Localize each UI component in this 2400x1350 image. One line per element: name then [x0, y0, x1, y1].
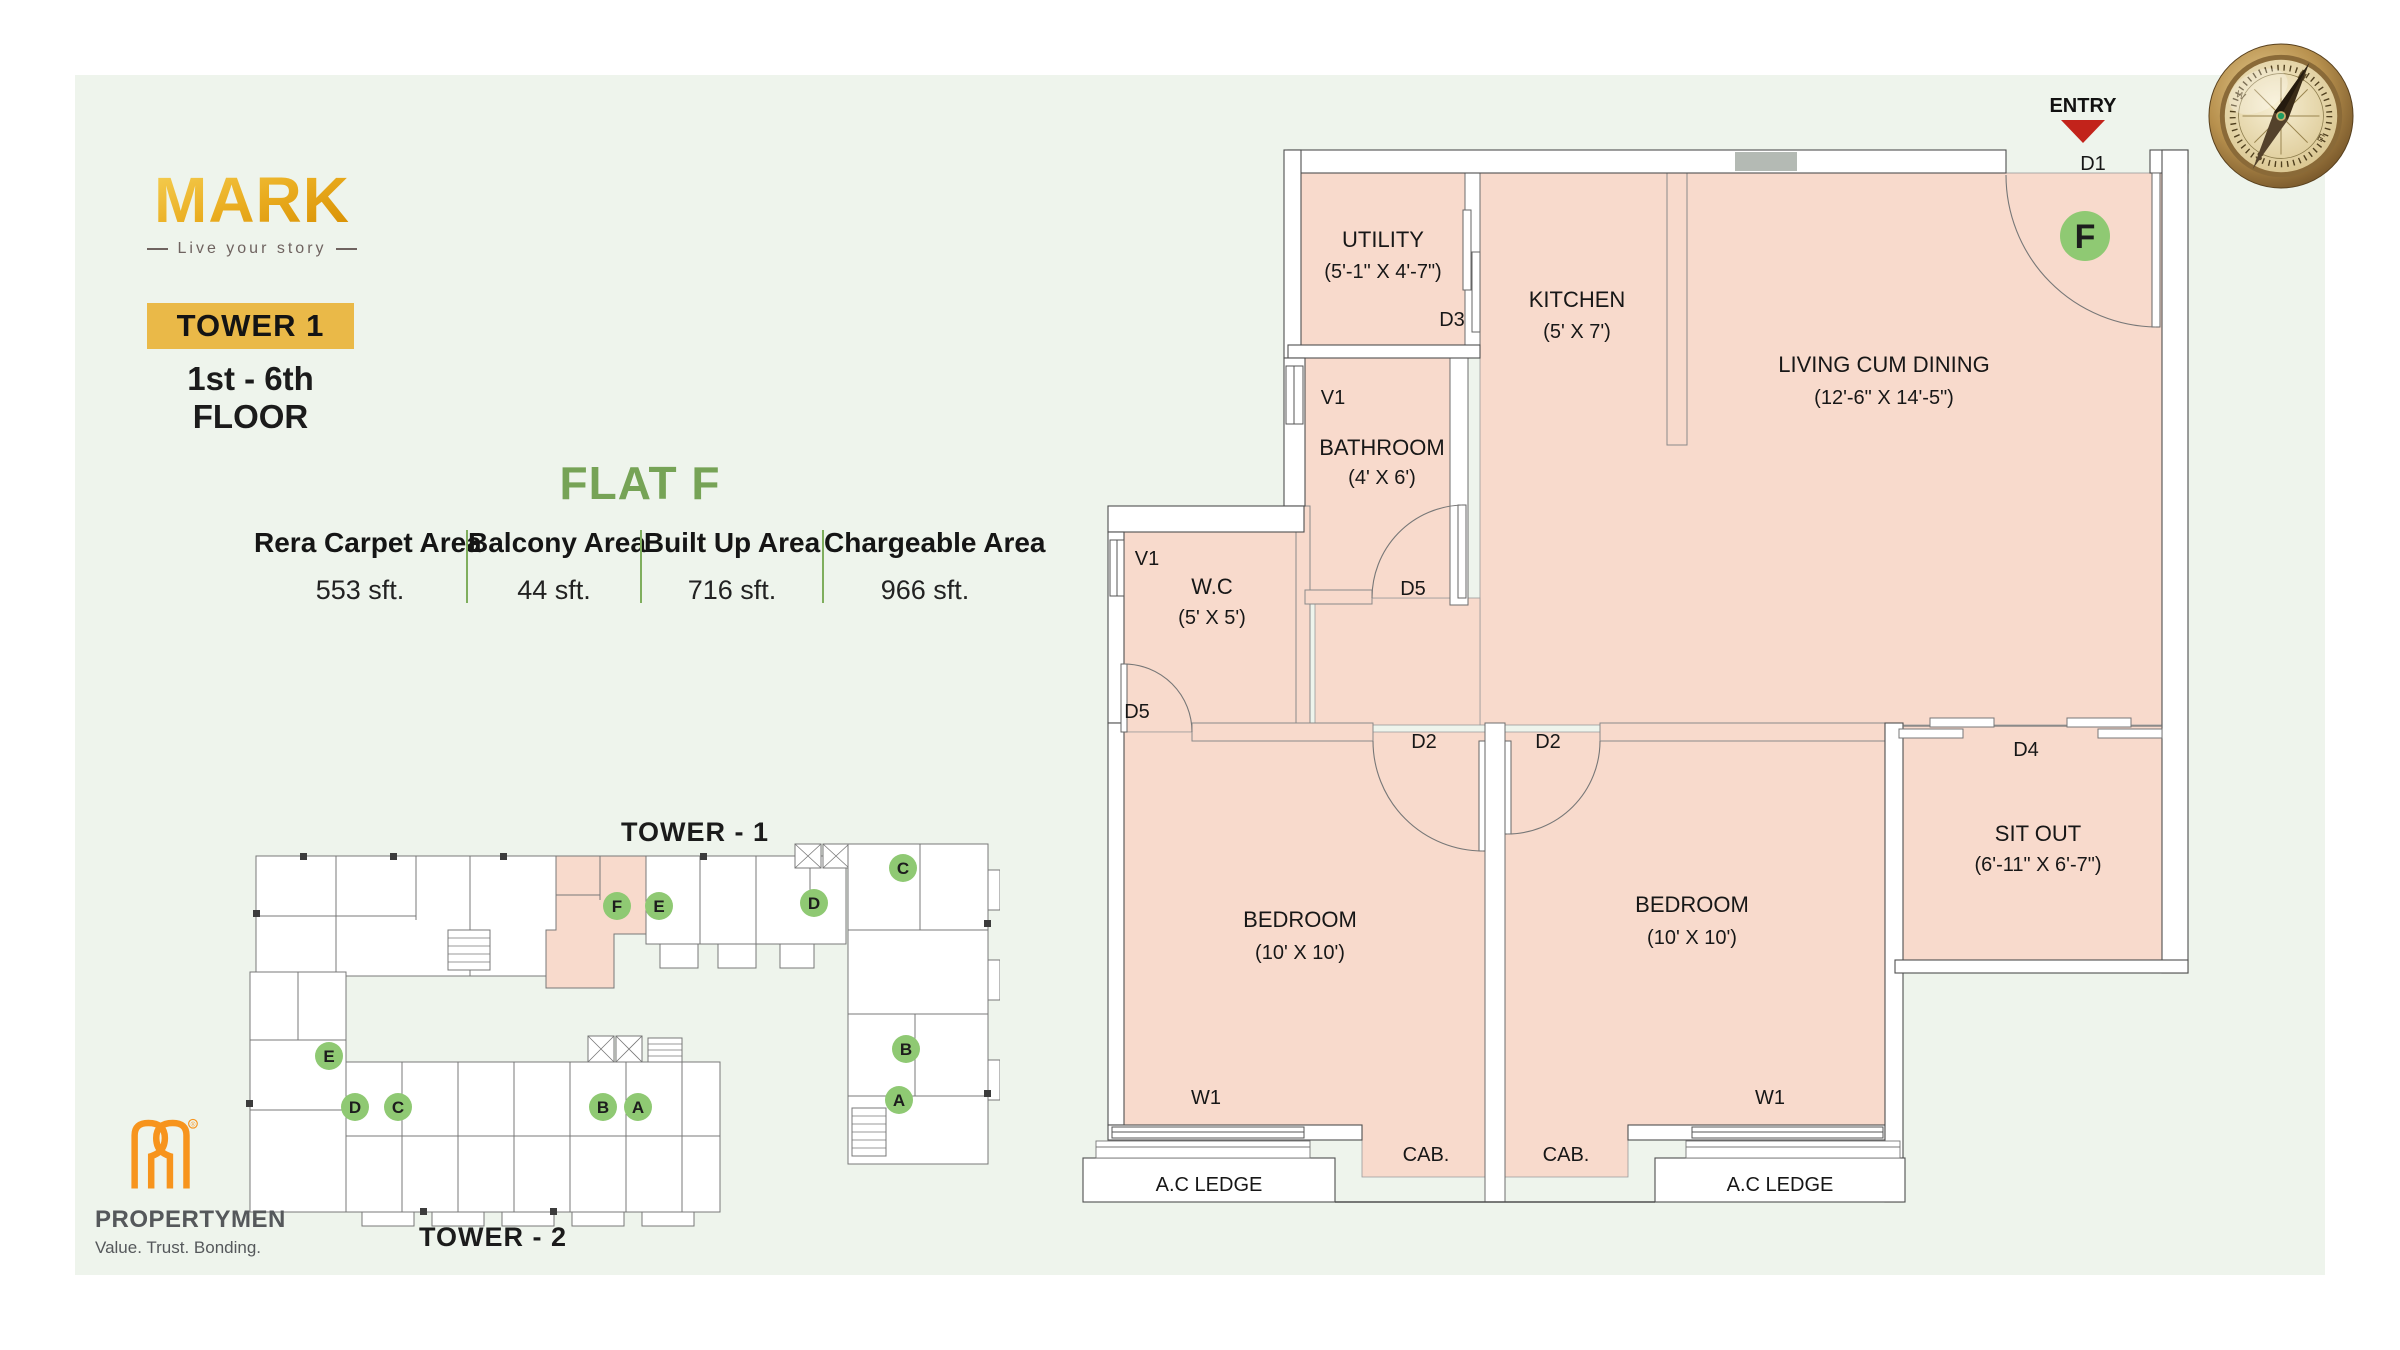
badge-e2: E [323, 1047, 334, 1066]
room-fills [1124, 173, 2165, 1177]
code-d4: D4 [2013, 739, 2039, 761]
tower-badge: TOWER 1 [147, 303, 354, 349]
door-d4-panel [2067, 718, 2131, 727]
code-v1-bathroom: V1 [1321, 387, 1345, 409]
badge-a: A [893, 1091, 905, 1110]
wc-dims: (5' X 5') [1178, 607, 1246, 629]
living-dims: (12'-6" X 14'-5") [1814, 387, 1954, 409]
code-d1: D1 [2080, 153, 2106, 175]
door-d3-panel [1472, 252, 1480, 332]
top-wall-duct [1735, 152, 1797, 171]
bedroom2-label: BEDROOM [1635, 892, 1749, 917]
area-cell-balcony: Balcony Area 44 sft. [468, 527, 640, 606]
wc-label: W.C [1191, 574, 1233, 599]
registered-mark: ® [191, 1120, 196, 1128]
badge-d2: D [349, 1098, 361, 1117]
entry-arrow-icon [2061, 120, 2105, 143]
bedroom1-label: BEDROOM [1243, 907, 1357, 932]
bathroom-dims: (4' X 6') [1348, 467, 1416, 489]
brand-tagline: Live your story [177, 240, 326, 258]
company-name: PROPERTYMEN [95, 1206, 355, 1234]
floor-range: 1st - 6th FLOOR [147, 360, 354, 436]
entry-label: ENTRY [2049, 95, 2117, 117]
tower1-label: TOWER - 1 [621, 817, 769, 847]
door-d4-panel [1930, 718, 1994, 727]
code-v1-wc: V1 [1135, 548, 1159, 570]
badge-a2: A [632, 1098, 644, 1117]
sitout-dims: (6'-11" X 6'-7") [1974, 854, 2101, 876]
door-d2-right-leaf [1505, 741, 1511, 834]
code-d3: D3 [1439, 309, 1465, 331]
area-label: Built Up Area [642, 527, 822, 559]
compass-icon: N E S W [2207, 42, 2355, 190]
badge-c: C [897, 859, 909, 878]
brand-tagline-row: Live your story [147, 240, 357, 258]
area-label: Balcony Area [468, 527, 640, 559]
badge-d: D [808, 894, 820, 913]
badge-e: E [653, 897, 664, 916]
door-d5-bathroom-leaf [1458, 505, 1466, 598]
door-d3-panel [1463, 210, 1471, 290]
tower2-label: TOWER - 2 [419, 1222, 567, 1252]
code-d5-bathroom: D5 [1400, 578, 1426, 600]
propertymen-logo-icon: ® [126, 1106, 198, 1202]
room-corridor [1315, 598, 1480, 725]
code-d5-wc: D5 [1124, 701, 1150, 723]
badge-c2: C [392, 1098, 404, 1117]
area-table: Rera Carpet Area 553 sft. Balcony Area 4… [235, 527, 1045, 606]
area-value: 44 sft. [468, 575, 640, 606]
company-tagline: Value. Trust. Bonding. [95, 1238, 355, 1258]
bedroom1-dims: (10' X 10') [1255, 942, 1345, 964]
brand-logo-text: MARK [154, 168, 350, 232]
tagline-rule-right [336, 248, 357, 250]
door-d2-left-leaf [1479, 741, 1485, 851]
badge-b: B [900, 1040, 912, 1059]
area-value: 716 sft. [642, 575, 822, 606]
flat-title: FLAT F [250, 456, 1030, 510]
door-d4-panel [2098, 729, 2162, 738]
area-label: Rera Carpet Area [254, 527, 466, 559]
utility-label: UTILITY [1342, 227, 1424, 252]
tagline-rule-left [147, 248, 168, 250]
key-plan: TOWER - 1 TOWER - 2 F E D C B A E D C B … [230, 812, 1000, 1262]
ac-ledge-right-label: A.C LEDGE [1727, 1174, 1834, 1196]
sitout-label: SIT OUT [1995, 821, 2081, 846]
code-d2-left: D2 [1411, 731, 1437, 753]
code-w1-bedroom1: W1 [1191, 1087, 1221, 1109]
area-cell-builtup: Built Up Area 716 sft. [642, 527, 822, 606]
brand-logo: MARK Live your story [147, 168, 357, 258]
code-w1-bedroom2: W1 [1755, 1087, 1785, 1109]
propertymen-text: PROPERTYMEN Value. Trust. Bonding. [95, 1206, 355, 1258]
area-cell-rera: Rera Carpet Area 553 sft. [254, 527, 466, 606]
bedroom2-dims: (10' X 10') [1647, 927, 1737, 949]
badge-f: F [612, 897, 622, 916]
area-cell-chargeable: Chargeable Area 966 sft. [824, 527, 1026, 606]
area-label: Chargeable Area [824, 527, 1026, 559]
kitchen-label: KITCHEN [1529, 287, 1626, 312]
badge-b2: B [597, 1098, 609, 1117]
code-d2-right: D2 [1535, 731, 1561, 753]
area-value: 966 sft. [824, 575, 1026, 606]
code-cab-left: CAB. [1403, 1144, 1450, 1166]
room-kitchen-living [1480, 173, 2165, 725]
bathroom-label: BATHROOM [1319, 435, 1444, 460]
kitchen-dims: (5' X 7') [1543, 321, 1611, 343]
code-cab-right: CAB. [1543, 1144, 1590, 1166]
room-bedroom-2 [1503, 732, 1885, 1177]
ac-ledge-left-label: A.C LEDGE [1156, 1174, 1263, 1196]
flat-badge-letter: F [2075, 218, 2096, 256]
door-d4-panel [1899, 729, 1963, 738]
living-label: LIVING CUM DINING [1778, 352, 1989, 377]
floor-plan: ENTRY F UTILITY (5'-1" X 4'-7") D3 KITCH… [1076, 85, 2204, 1210]
area-value: 553 sft. [254, 575, 466, 606]
utility-dims: (5'-1" X 4'-7") [1324, 261, 1441, 283]
door-d1-leaf [2152, 173, 2160, 327]
